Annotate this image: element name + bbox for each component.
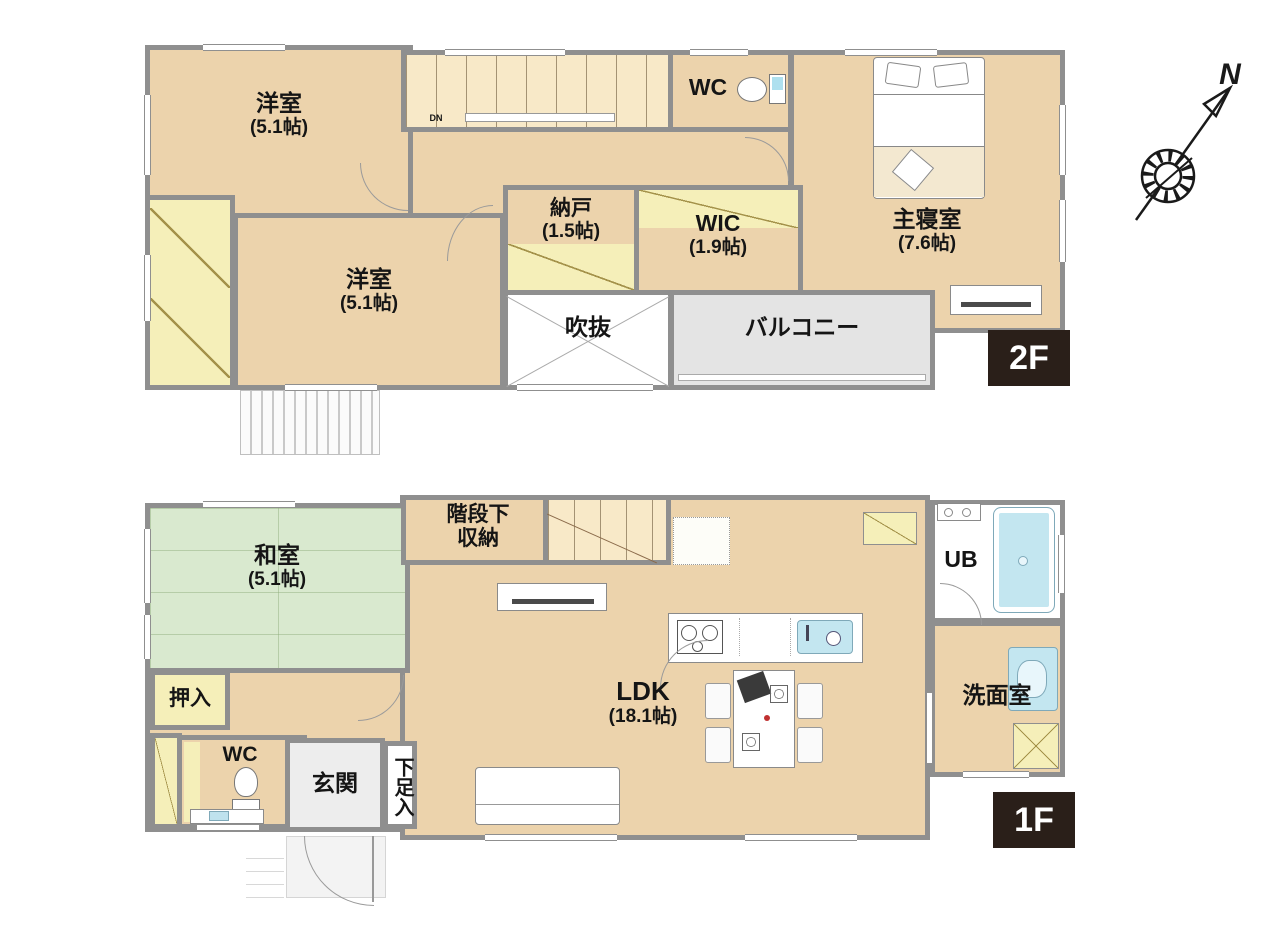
- room-label-genkan: 玄関: [286, 771, 384, 797]
- bed-cushion: [892, 149, 934, 191]
- badge-text: 1F: [1014, 801, 1054, 840]
- room-name: 洗面室: [931, 683, 1063, 709]
- laundry-storage: [1013, 723, 1059, 769]
- room-label-ub: UB: [935, 547, 987, 573]
- room-size: (7.6帖): [837, 233, 1017, 254]
- window: [1058, 535, 1065, 593]
- room-name: 階段下: [413, 503, 543, 527]
- window: [1059, 105, 1066, 175]
- bed-blanket: [874, 146, 984, 197]
- room-label-getabako: 下足入: [387, 747, 413, 827]
- nando-shelf: [508, 244, 634, 290]
- porch-steps: [246, 846, 284, 898]
- pillow-right: [933, 62, 969, 88]
- room-size: (1.5帖): [511, 221, 631, 242]
- window: [690, 49, 748, 56]
- room-label-fukinuke: 吹抜: [528, 315, 648, 341]
- room-name: WIC: [643, 211, 793, 237]
- room-name: 和室: [187, 543, 367, 569]
- floor-badge-2f: 2F: [988, 330, 1070, 386]
- room-name: LDK: [581, 677, 705, 706]
- room-name: 納戸: [511, 197, 631, 221]
- dresser-handle: [961, 302, 1031, 307]
- stair-arrow-line: [547, 514, 657, 564]
- room-label-master: 主寝室 (7.6帖): [837, 207, 1017, 254]
- badge-text: 2F: [1009, 339, 1049, 378]
- room-label-washitsu: 和室 (5.1帖): [187, 543, 367, 590]
- floor-plan-2f: 洋室 (5.1帖) 洋室 (5.1帖) 納戸 (1.5帖) WIC (1.9帖)…: [145, 45, 1065, 390]
- room-name: 玄関: [286, 771, 384, 797]
- compass: N: [1118, 58, 1258, 238]
- window: [1059, 200, 1066, 262]
- vanity-bowl: [944, 508, 953, 517]
- place-setting-2: [742, 733, 760, 751]
- window: [963, 771, 1029, 778]
- tv-board: [497, 583, 607, 611]
- faucet: [806, 625, 809, 641]
- burner-2: [702, 625, 718, 641]
- sink-drain: [826, 631, 841, 646]
- window: [445, 49, 565, 56]
- sofa: [475, 767, 620, 825]
- window: [144, 615, 151, 659]
- room-name: UB: [935, 547, 987, 573]
- roof-hatch: [240, 390, 380, 455]
- floor-badge-1f: 1F: [993, 792, 1075, 848]
- room-size: (5.1帖): [189, 117, 369, 138]
- tub-drain: [1018, 556, 1028, 566]
- room-name-2: 収納: [413, 527, 543, 551]
- room-label-wc-2f: WC: [673, 75, 743, 101]
- balcony-railing: [678, 374, 926, 381]
- room-label-oshiire: 押入: [150, 687, 230, 711]
- closet-cell-lower: [150, 298, 230, 378]
- closet-column-2f: [145, 195, 235, 390]
- room-name: 洋室: [279, 267, 459, 293]
- toilet-lid-2f: [772, 77, 783, 90]
- room-label-nando: 納戸 (1.5帖): [511, 197, 631, 242]
- room-size: (5.1帖): [187, 569, 367, 590]
- room-size: (1.9帖): [643, 237, 793, 258]
- room-name: 洋室: [189, 91, 369, 117]
- room-label-senmen: 洗面室: [931, 683, 1063, 709]
- floor-plan-page: { "compass": { "label": "N" }, "colors":…: [0, 0, 1280, 924]
- pillow-left: [885, 62, 922, 89]
- hand-basin: [209, 811, 229, 821]
- window: [285, 384, 377, 391]
- refrigerator-space: [673, 517, 730, 565]
- window: [203, 44, 285, 51]
- staircase-1f: [543, 495, 671, 565]
- pantry-shelf: [863, 512, 917, 545]
- place-setting-1: [770, 685, 788, 703]
- window: [485, 834, 617, 841]
- bath-vanity: [937, 503, 981, 521]
- room-size: (5.1帖): [279, 293, 459, 314]
- window: [745, 834, 857, 841]
- stairs-dn-label: DN: [421, 113, 451, 123]
- chair: [797, 727, 823, 763]
- chair: [705, 683, 731, 719]
- room-label-wc-1f: WC: [205, 743, 275, 767]
- kitchen-sink: [797, 620, 853, 654]
- room-name: 押入: [150, 687, 230, 711]
- room-name: バルコニー: [722, 315, 882, 341]
- closet-cell-upper: [150, 208, 230, 288]
- room-name: WC: [205, 743, 275, 767]
- wc-counter: [190, 809, 264, 824]
- flower-vase: [764, 715, 770, 721]
- vanity-bowl: [962, 508, 971, 517]
- window: [144, 95, 151, 175]
- dresser: [950, 285, 1042, 315]
- room-label-wic: WIC (1.9帖): [643, 211, 793, 258]
- room-label-yoshitsu2: 洋室 (5.1帖): [279, 267, 459, 314]
- toilet-bowl-1f: [234, 767, 258, 797]
- double-bed: [873, 57, 985, 199]
- north-label: N: [1219, 58, 1242, 91]
- window: [197, 824, 259, 831]
- dn-text: DN: [430, 113, 443, 123]
- window: [845, 49, 937, 56]
- chair: [797, 683, 823, 719]
- counter-middle: [739, 618, 791, 656]
- window: [203, 501, 295, 508]
- dining-table: [733, 670, 795, 768]
- bathtub: [993, 507, 1055, 613]
- room-label-ldk: LDK (18.1帖): [581, 677, 705, 727]
- bed-fold-line: [874, 94, 984, 95]
- room-name: 吹抜: [528, 315, 648, 341]
- toilet-2f: [737, 73, 789, 107]
- room-label-yoshitsu1: 洋室 (5.1帖): [189, 91, 369, 138]
- chair: [705, 727, 731, 763]
- table-tray: [737, 671, 772, 703]
- tv: [512, 599, 594, 604]
- room-label-kaidanshita: 階段下 収納: [413, 503, 543, 550]
- room-label-balcony: バルコニー: [722, 315, 882, 341]
- room-name: WC: [673, 75, 743, 101]
- window: [144, 529, 151, 603]
- room-name: 下足入: [391, 757, 413, 817]
- room-name: 主寝室: [837, 207, 1017, 233]
- burner-1: [681, 625, 697, 641]
- room-size: (18.1帖): [581, 706, 705, 727]
- stair-handrail: [465, 113, 615, 122]
- compass-rose-icon: N: [1118, 58, 1258, 238]
- window: [517, 384, 653, 391]
- sofa-seat-line: [476, 804, 619, 805]
- window: [144, 255, 151, 321]
